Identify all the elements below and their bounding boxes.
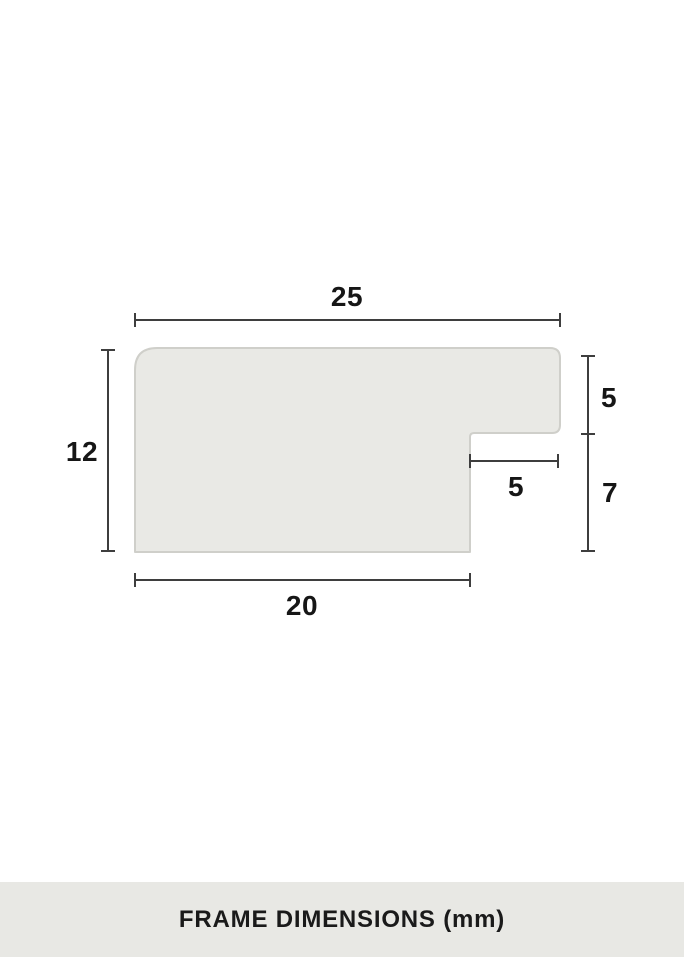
dim-label-top-width: 25 — [331, 283, 363, 311]
caption-text: FRAME DIMENSIONS (mm) — [179, 908, 505, 932]
dimension-line-top-width — [135, 313, 560, 327]
dim-label-rabbet-width: 5 — [508, 473, 524, 501]
caption-bar: FRAME DIMENSIONS (mm) — [0, 882, 684, 957]
dimension-line-bottom-width — [135, 573, 470, 587]
dimension-line-left-height — [101, 350, 115, 551]
frame-profile-shape — [135, 348, 560, 552]
diagram-canvas — [0, 0, 684, 882]
dimension-line-rabbet-width — [470, 454, 558, 468]
dim-label-right-lower-height: 7 — [602, 479, 618, 507]
frame-profile-diagram: 25 12 5 7 5 20 — [0, 0, 684, 882]
dimension-line-right-heights — [581, 356, 595, 551]
dim-label-right-upper-height: 5 — [601, 384, 617, 412]
dim-label-left-height: 12 — [66, 438, 98, 466]
frame-dimensions-page: { "caption": { "label": "FRAME DIMENSION… — [0, 0, 684, 957]
dim-label-bottom-width: 20 — [286, 592, 318, 620]
